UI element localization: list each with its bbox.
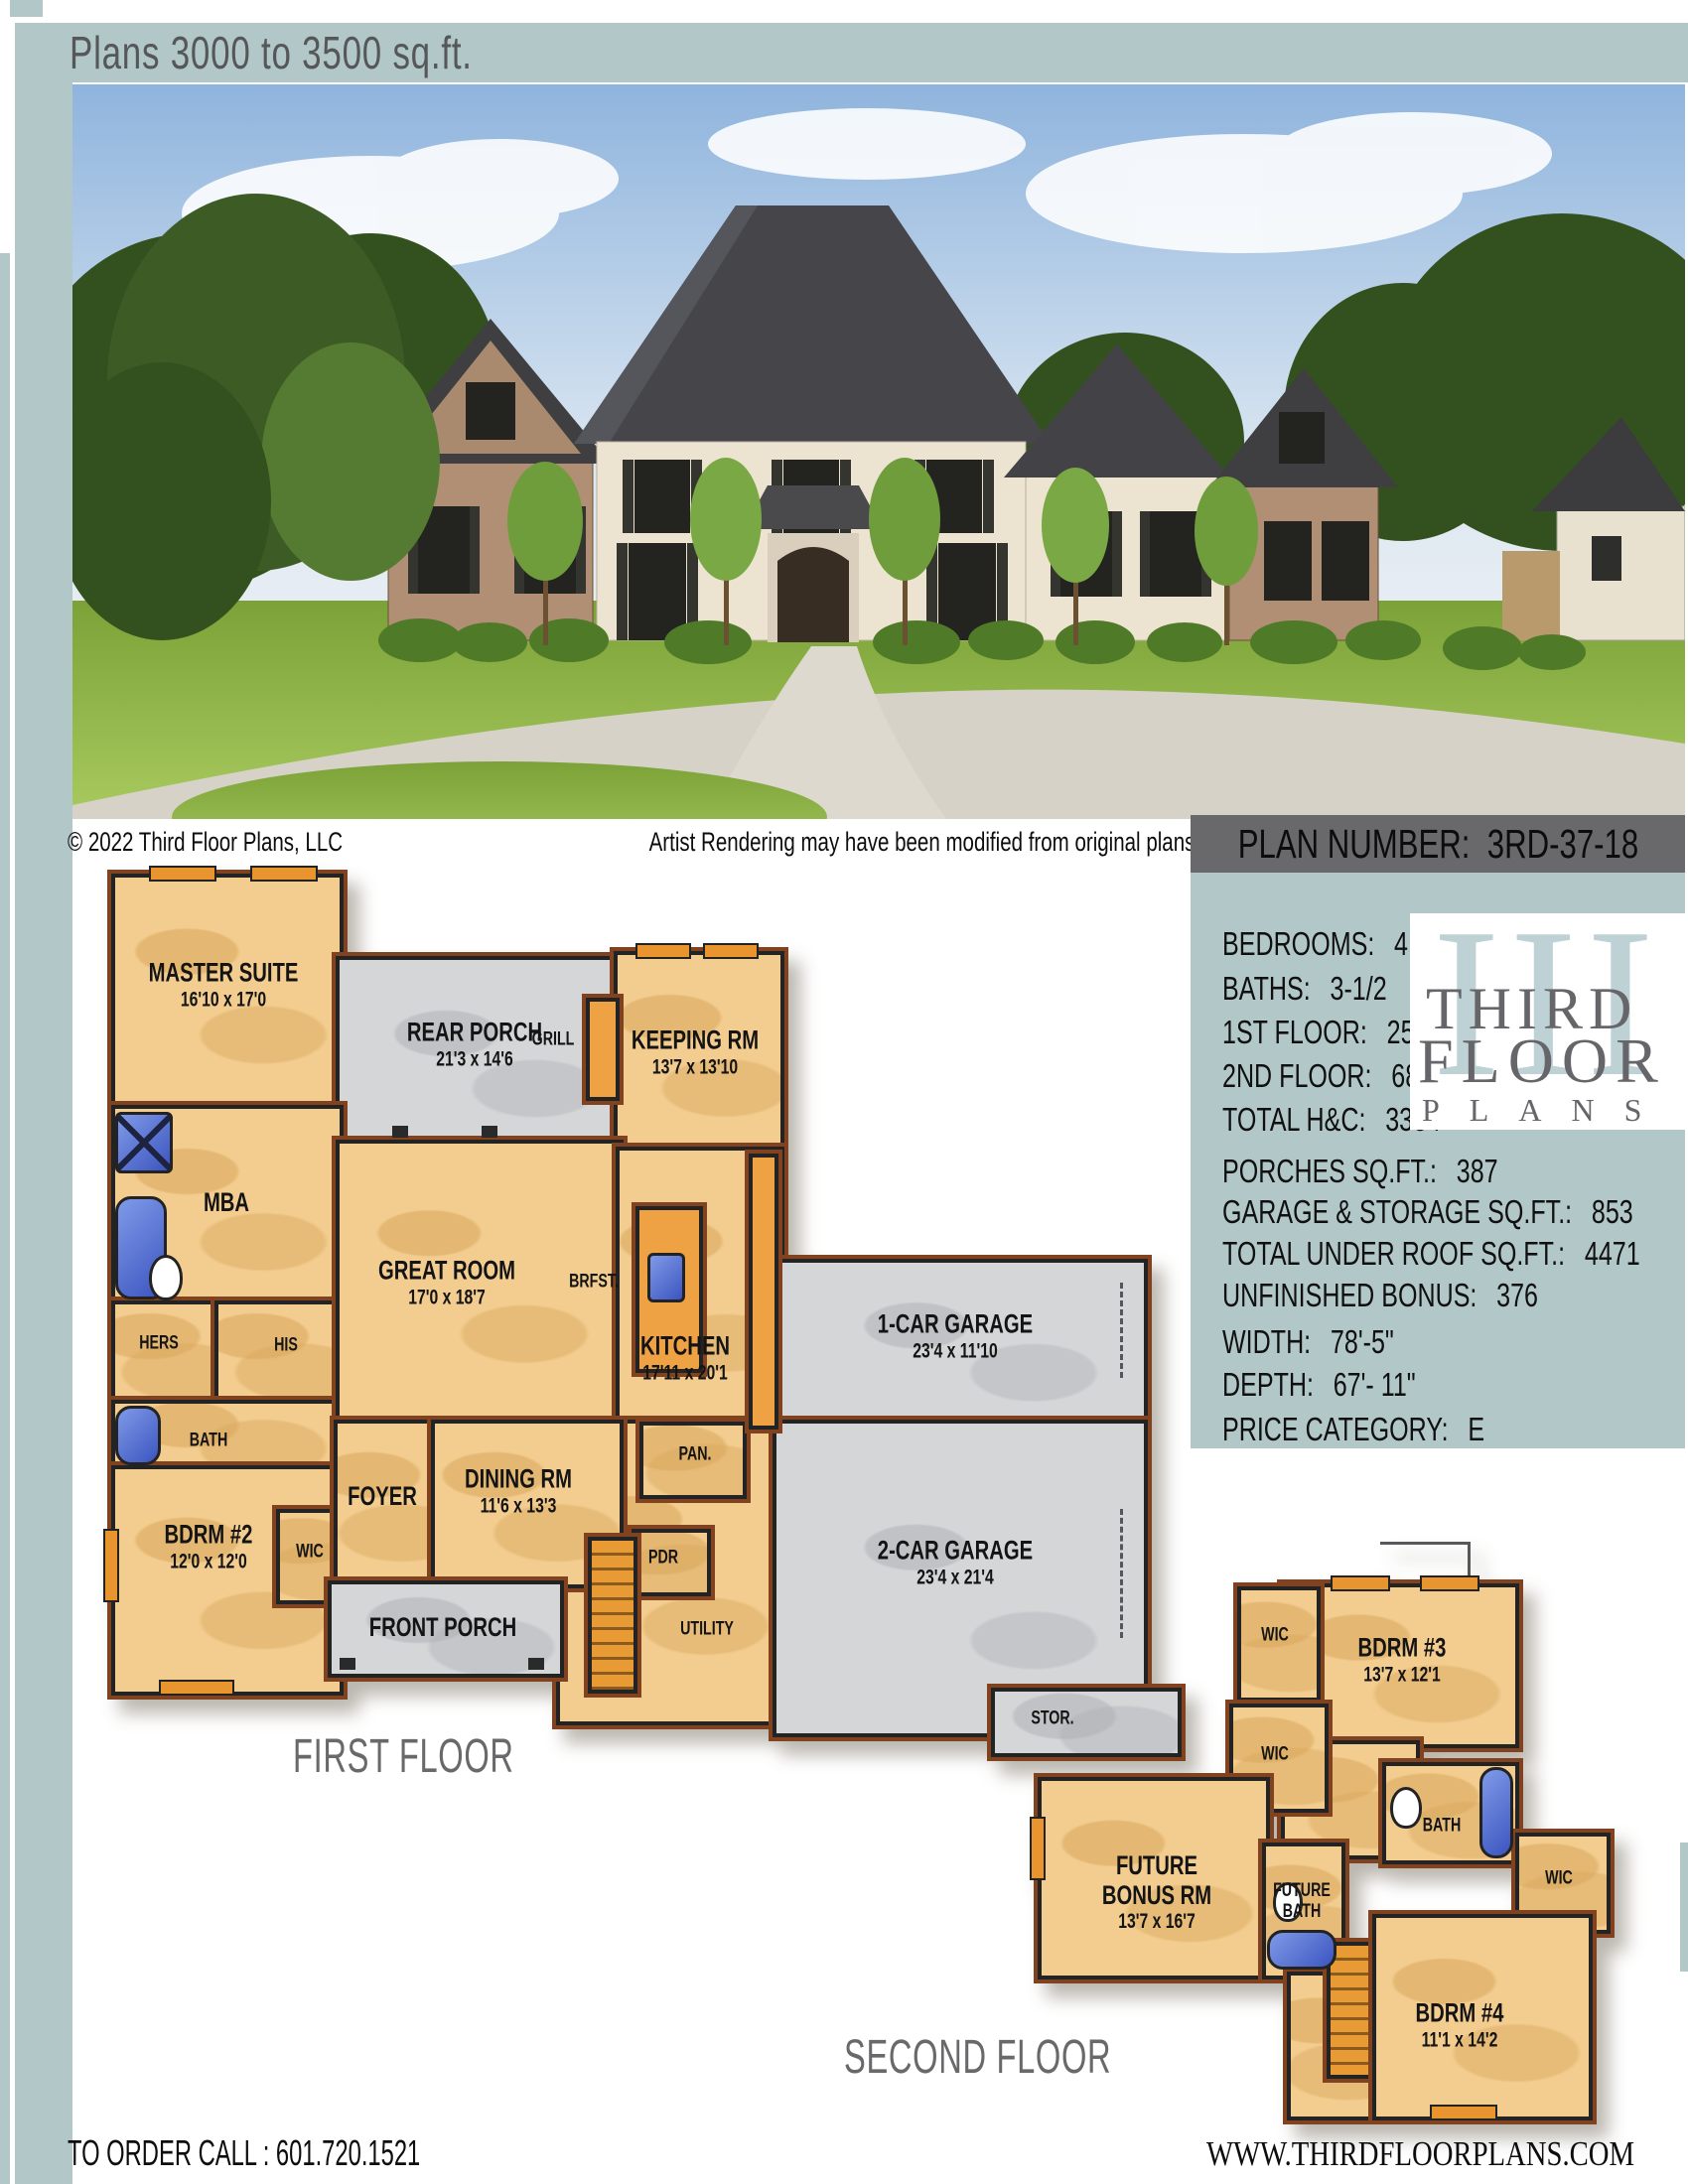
tub-icon: [1267, 1930, 1336, 1970]
label-bath2: BATH: [1423, 1817, 1462, 1838]
second-floor-title: SECOND FLOOR: [844, 2030, 1237, 2085]
label-bdrm3: BDRM #313'7 x 12'1: [1358, 1634, 1447, 1687]
label-bonus: FUTUREBONUS RM13'7 x 16'7: [1102, 1851, 1211, 1933]
window-icon: [1420, 1575, 1479, 1591]
window-icon: [1030, 1817, 1046, 1880]
window-icon: [1331, 1575, 1390, 1591]
label-wic-mid: WIC: [1261, 1745, 1289, 1766]
second-floor-plan: WIC BDRM #313'7 x 12'1 WIC BATH FUTUREBO…: [0, 0, 1688, 2184]
label-wic-top: WIC: [1261, 1626, 1289, 1647]
window-icon: [1430, 2105, 1497, 2120]
label-bdrm4: BDRM #411'1 x 14'2: [1416, 1999, 1504, 2052]
tub-icon: [1479, 1767, 1513, 1858]
order-phone: TO ORDER CALL : 601.720.1521: [68, 2132, 602, 2174]
label-future-bath: FUTUREBATH: [1273, 1881, 1331, 1923]
website-url: WWW.THIRDFLOORPLANS.COM: [1206, 2134, 1688, 2174]
brochure-page: Plans 3000 to 3500 sq.ft.: [0, 0, 1688, 2184]
label-wic-right: WIC: [1545, 1869, 1573, 1890]
toilet-icon: [1390, 1787, 1422, 1829]
